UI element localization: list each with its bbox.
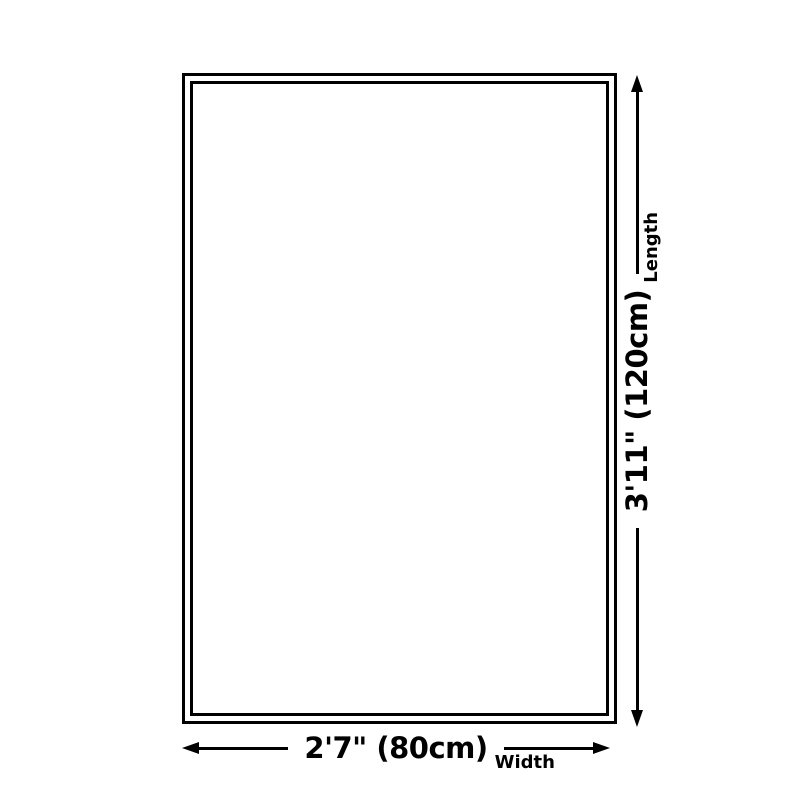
length-arrow-line-lower [636,528,639,710]
width-dimension: 2'7" (80cm) Width [182,726,610,770]
width-arrow-line-right: Width [504,747,593,750]
arrowhead-right-icon [593,742,610,754]
length-value: 3'11" (120cm) [623,290,652,513]
width-label: Width [495,754,555,772]
length-label: Length [643,212,661,283]
width-value: 2'7" (80cm) [304,734,487,763]
rug-inner-border [190,81,609,716]
rug-outline [182,73,617,724]
length-arrow-line-upper: Length [636,92,639,274]
width-arrow-line-left [199,747,288,750]
arrowhead-left-icon [182,742,199,754]
arrowhead-down-icon [631,710,643,727]
arrowhead-up-icon [631,75,643,92]
dimension-diagram: 2'7" (80cm) Width 3'11" (120cm) Length [0,0,800,800]
length-dimension: 3'11" (120cm) Length [615,75,659,727]
